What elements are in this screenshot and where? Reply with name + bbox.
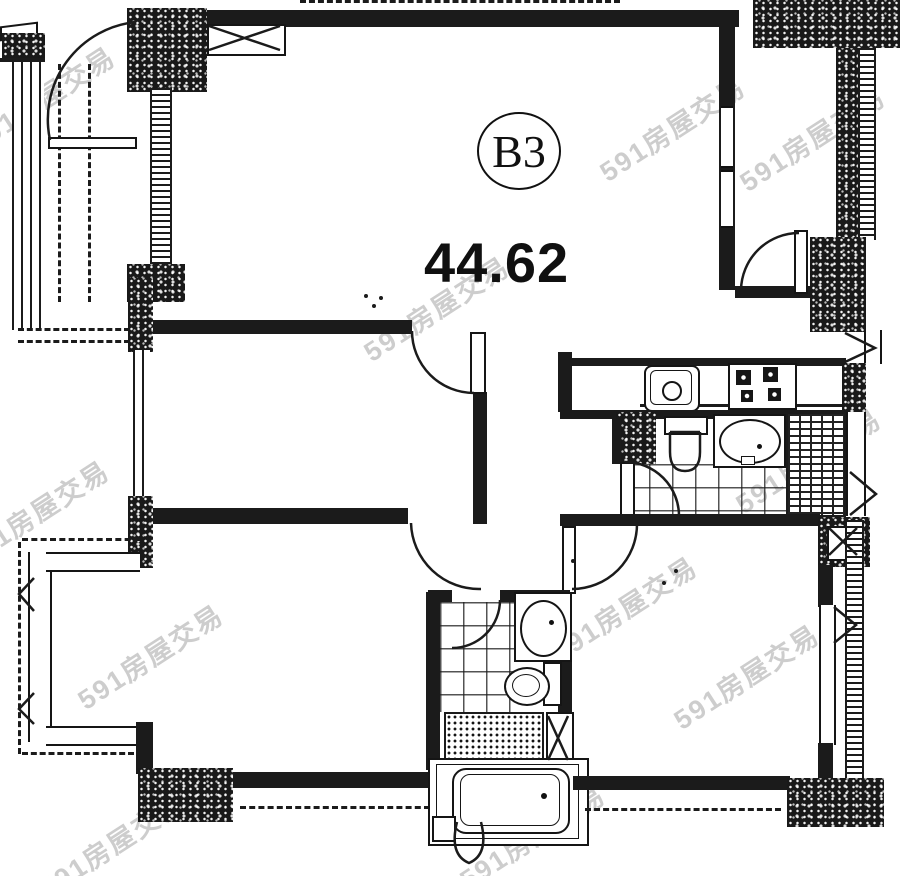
window-opening-triangle xyxy=(19,693,34,724)
floor-plan: 591房屋交易 591房屋交易 591房屋交易 591房屋交易 591房屋交易 … xyxy=(0,0,900,876)
scan-speckle xyxy=(662,581,666,585)
window-opening-triangle xyxy=(834,607,856,643)
toilet1-bowl xyxy=(670,432,700,471)
scan-speckle xyxy=(372,304,376,308)
bath2-door-swing xyxy=(452,600,500,648)
scan-speckle xyxy=(364,294,368,298)
right-room-door-swing xyxy=(741,233,799,290)
window-opening-triangle xyxy=(845,333,875,362)
window-opening-triangle xyxy=(19,578,34,611)
shaft-x xyxy=(829,528,857,555)
scan-speckle xyxy=(379,296,383,300)
washer-x xyxy=(548,716,568,760)
scan-speckle xyxy=(571,559,575,563)
bedroom1-door-swing xyxy=(412,331,474,393)
bath1-door-swing xyxy=(625,462,679,516)
closet-x xyxy=(209,26,280,50)
scan-speckle xyxy=(674,569,678,573)
living-door-swing xyxy=(411,523,481,589)
plan-linework xyxy=(0,0,900,876)
window-opening-triangle xyxy=(850,472,876,515)
tub-drain-shape xyxy=(455,822,484,863)
bedroom2-door-swing xyxy=(572,524,637,589)
entry-door-swing xyxy=(48,22,136,140)
